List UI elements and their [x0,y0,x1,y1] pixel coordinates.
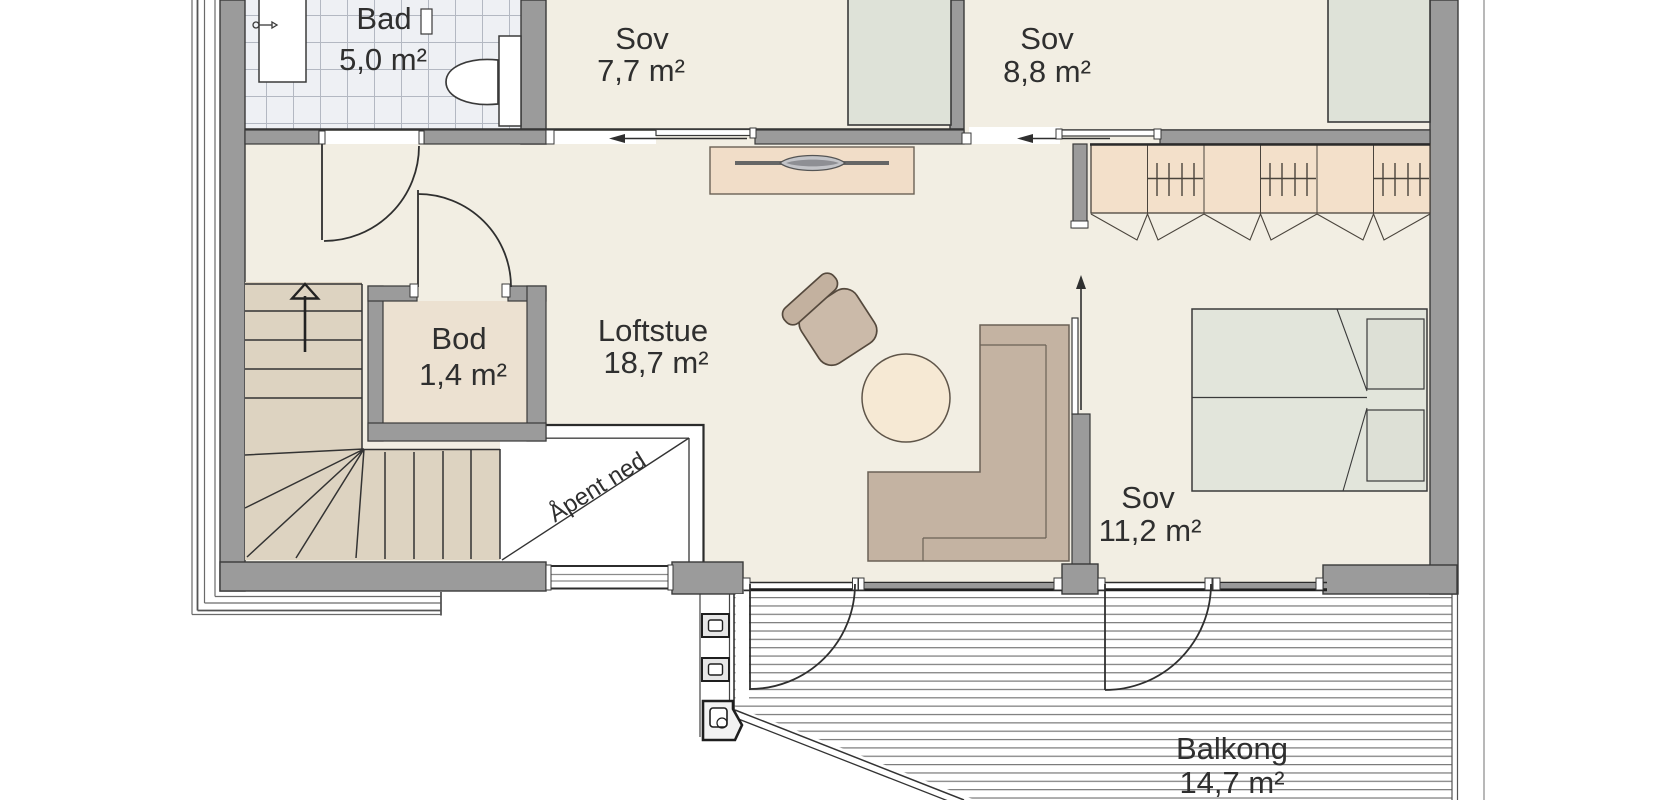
svg-text:7,7 m²: 7,7 m² [597,53,685,88]
svg-text:1,4 m²: 1,4 m² [419,357,507,392]
svg-text:Sov: Sov [1020,21,1074,56]
svg-text:11,2 m²: 11,2 m² [1099,513,1202,548]
svg-text:5,0 m²: 5,0 m² [339,42,427,77]
svg-text:Loftstue: Loftstue [598,313,708,348]
svg-text:Bod: Bod [431,321,486,356]
svg-text:14,7 m²: 14,7 m² [1179,765,1284,800]
svg-text:8,8 m²: 8,8 m² [1003,54,1091,89]
svg-text:Sov: Sov [1121,480,1175,515]
svg-text:Bad: Bad [356,1,411,36]
svg-text:18,7 m²: 18,7 m² [603,345,708,380]
svg-text:Sov: Sov [615,21,669,56]
svg-text:Balkong: Balkong [1176,731,1288,766]
